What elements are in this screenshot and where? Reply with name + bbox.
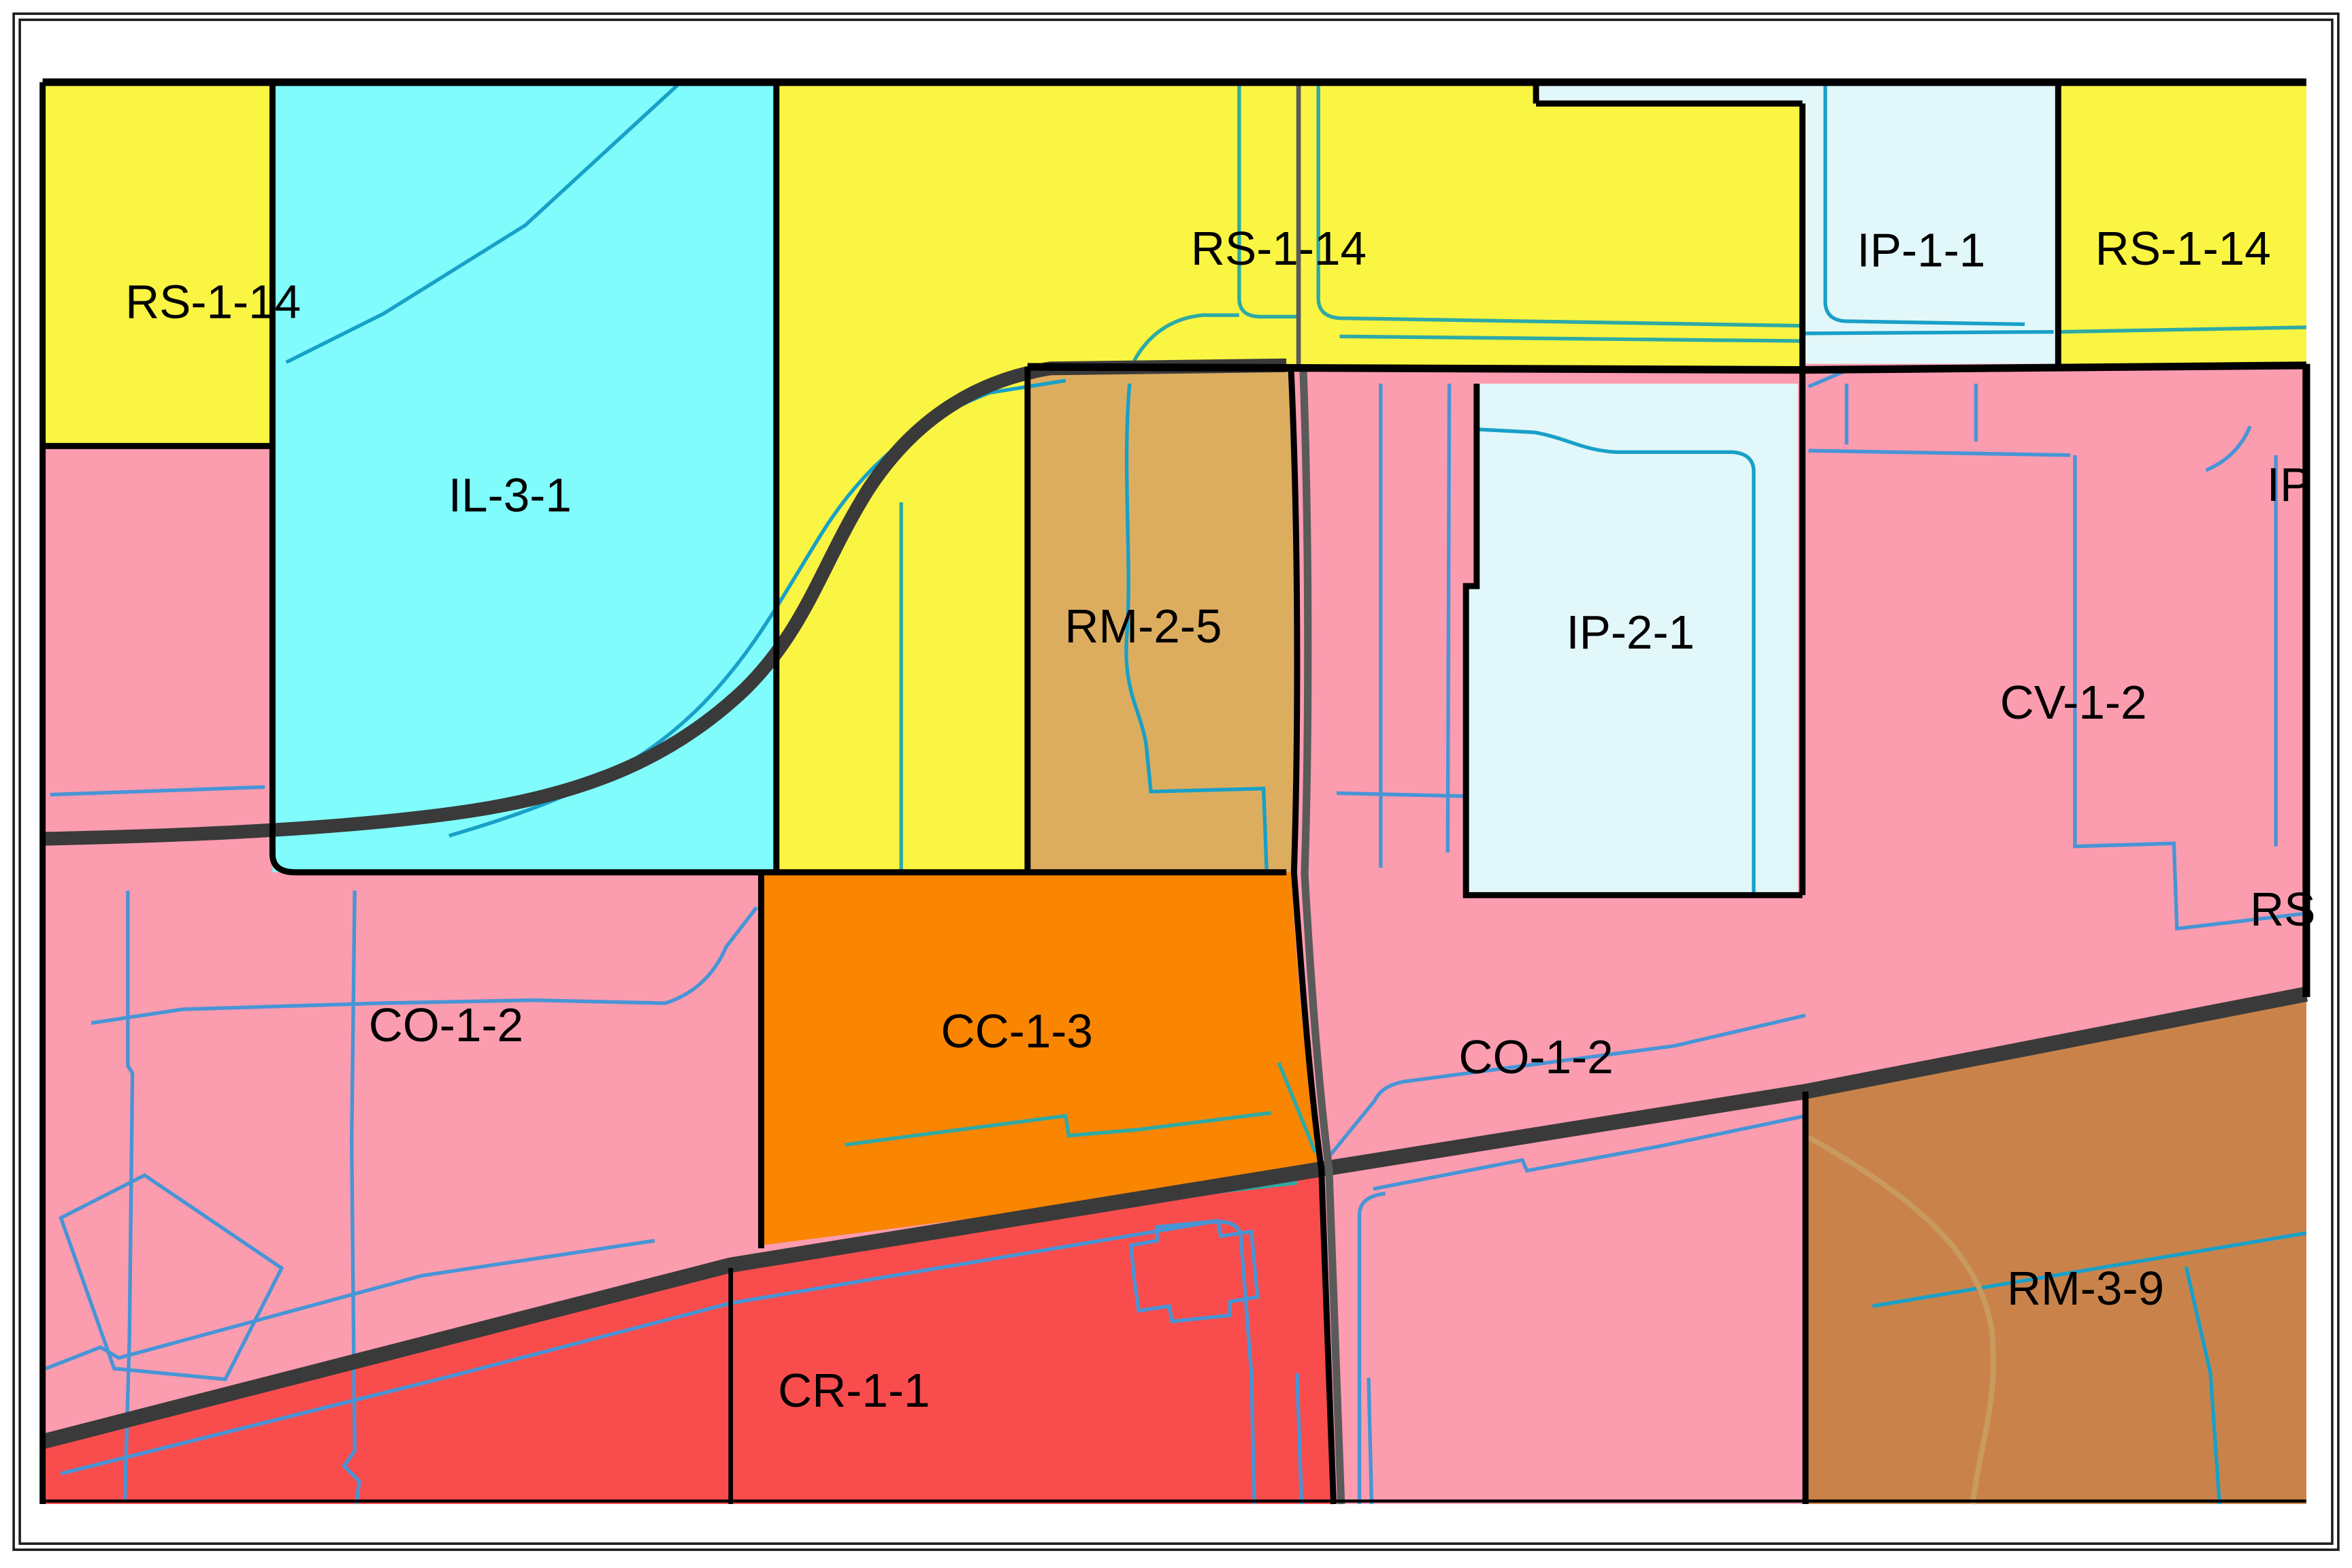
label-cv-1-2: CV-1-2 <box>2000 676 2147 729</box>
label-partial-ip: IP <box>2267 458 2312 511</box>
label-cc-1-3: CC-1-3 <box>941 1004 1093 1058</box>
parcel-line <box>1448 384 1449 853</box>
label-cr-1-1: CR-1-1 <box>778 1364 930 1417</box>
label-rm-2-5: RM-2-5 <box>1064 600 1222 653</box>
zoning-map-canvas[interactable]: RS-1-14 IL-3-1 RS-1-14 IP-1-1 RS-1-14 RM… <box>0 0 2352 1568</box>
label-rm-3-9: RM-3-9 <box>2007 1262 2164 1315</box>
label-co-1-2-e: CO-1-2 <box>1458 1030 1613 1083</box>
label-partial-rs: RS <box>2250 883 2315 936</box>
label-ip-2-1: IP-2-1 <box>1566 606 1695 659</box>
label-ip-1-1: IP-1-1 <box>1857 223 1986 276</box>
parcel-line <box>1802 332 2053 333</box>
label-il-3-1: IL-3-1 <box>448 469 572 522</box>
label-rs-1-14-n: RS-1-14 <box>1191 222 1367 275</box>
label-co-1-2-w: CO-1-2 <box>369 998 523 1051</box>
zone-rs-1-14-nw <box>43 82 273 446</box>
boundary-long-horizontal <box>1028 365 2306 370</box>
label-rs-1-14-ne: RS-1-14 <box>2095 222 2271 275</box>
label-rs-1-14-nw: RS-1-14 <box>125 276 301 329</box>
zoning-map: RS-1-14 IL-3-1 RS-1-14 IP-1-1 RS-1-14 RM… <box>0 0 2352 1568</box>
